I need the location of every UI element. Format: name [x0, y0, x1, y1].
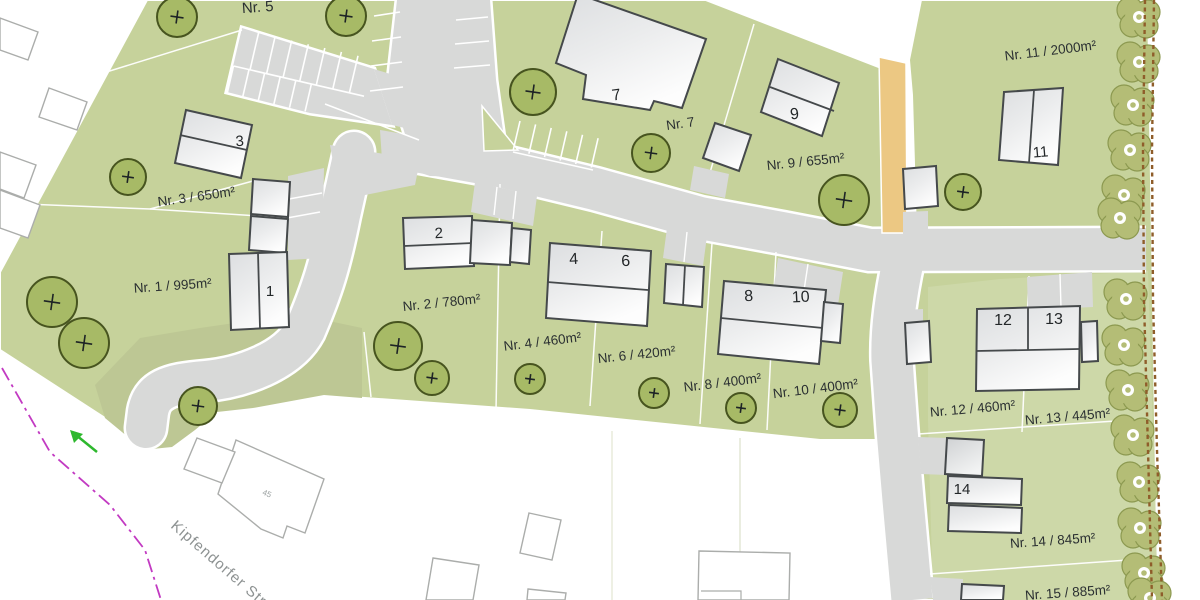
svg-text:2: 2 — [434, 225, 443, 242]
svg-text:12: 12 — [994, 312, 1012, 329]
svg-text:13: 13 — [1045, 311, 1063, 328]
svg-text:1: 1 — [266, 283, 274, 300]
svg-text:8: 8 — [744, 288, 754, 305]
svg-text:9: 9 — [789, 106, 800, 124]
svg-text:Nr. 5: Nr. 5 — [241, 0, 274, 17]
svg-text:14: 14 — [954, 481, 971, 498]
svg-text:3: 3 — [235, 133, 245, 151]
svg-text:11: 11 — [1032, 143, 1049, 161]
svg-text:10: 10 — [791, 289, 810, 307]
svg-text:4: 4 — [569, 251, 579, 268]
svg-text:6: 6 — [621, 253, 631, 270]
